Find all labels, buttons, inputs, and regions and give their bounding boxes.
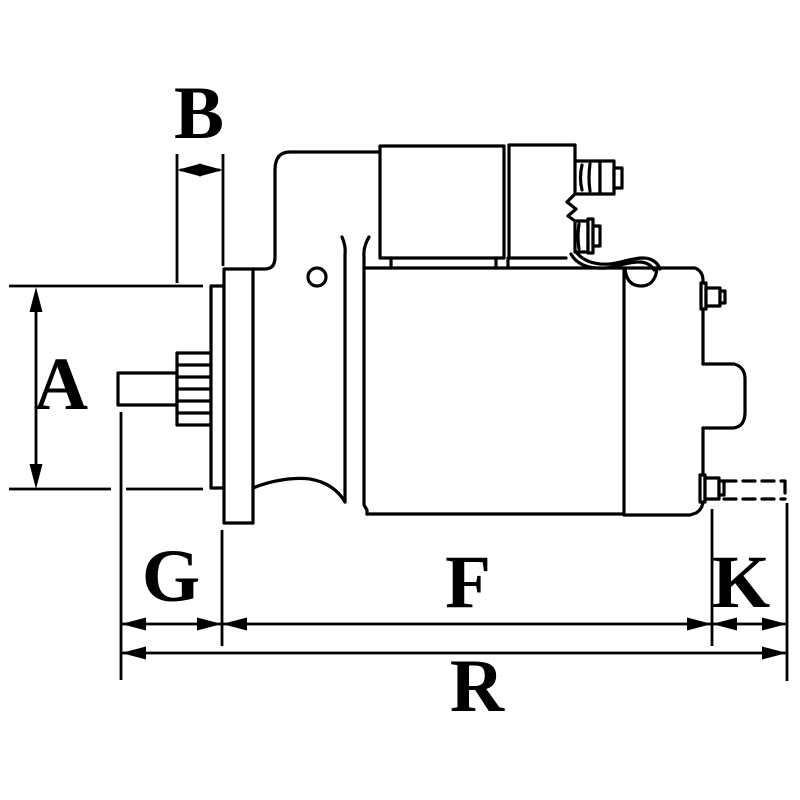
battery-terminal-tip bbox=[614, 168, 622, 188]
dimension-label-f: F bbox=[445, 541, 491, 624]
battery-terminal-nut bbox=[600, 161, 614, 194]
motor-terminal bbox=[575, 219, 600, 253]
terminal-lug-hump bbox=[625, 268, 657, 286]
arrow-b-right bbox=[199, 164, 223, 177]
dimension-label-k: K bbox=[712, 541, 770, 624]
bearing-plate bbox=[211, 286, 224, 488]
drawing-canvas: A B G F K R bbox=[0, 0, 800, 800]
battery-terminal bbox=[575, 161, 622, 194]
dimension-label-g: G bbox=[142, 535, 200, 618]
hidden-bolt-dashed-outline bbox=[724, 481, 785, 499]
machine-outline bbox=[118, 145, 785, 523]
bracket-rear-edge bbox=[342, 237, 345, 502]
arrow-g-left bbox=[121, 618, 146, 631]
solenoid-cap bbox=[509, 145, 576, 258]
motor-terminal-post-curve bbox=[578, 224, 579, 249]
lower-through-bolt bbox=[700, 475, 724, 502]
solenoid-body bbox=[380, 146, 504, 258]
drive-end-bracket bbox=[253, 152, 380, 269]
bracket-hole bbox=[308, 268, 326, 286]
mounting-flange bbox=[224, 269, 253, 523]
upper-through-bolt bbox=[701, 283, 725, 309]
upper-bolt-nut bbox=[706, 288, 720, 306]
arrow-g-right bbox=[197, 618, 222, 631]
arrow-b-left bbox=[177, 164, 201, 177]
drive-shaft bbox=[118, 373, 177, 405]
dimension-label-b: B bbox=[174, 72, 224, 155]
end-cap-bottom bbox=[624, 428, 703, 515]
lower-bolt-nut bbox=[705, 478, 719, 499]
bracket-bottom-curve bbox=[253, 478, 345, 502]
motor-terminal-tip bbox=[593, 226, 600, 246]
upper-bolt-tip bbox=[720, 291, 725, 303]
dimension-label-a: A bbox=[34, 343, 88, 426]
end-cap-top bbox=[624, 268, 703, 364]
arrow-a-up bbox=[30, 287, 43, 312]
lower-bolt-tip bbox=[719, 481, 724, 495]
motor-body bbox=[364, 268, 624, 514]
end-cap-bearing-boss bbox=[703, 364, 745, 428]
dimension-label-r: R bbox=[450, 645, 505, 728]
arrow-a-down bbox=[30, 464, 43, 489]
arrow-r-left bbox=[121, 647, 146, 660]
arrow-f-left bbox=[222, 618, 247, 631]
yoke-front-edge bbox=[364, 237, 369, 514]
arrow-f-right bbox=[687, 618, 712, 631]
arrow-r-right bbox=[762, 647, 787, 660]
starter-motor-technical-drawing: A B G F K R bbox=[0, 0, 800, 800]
